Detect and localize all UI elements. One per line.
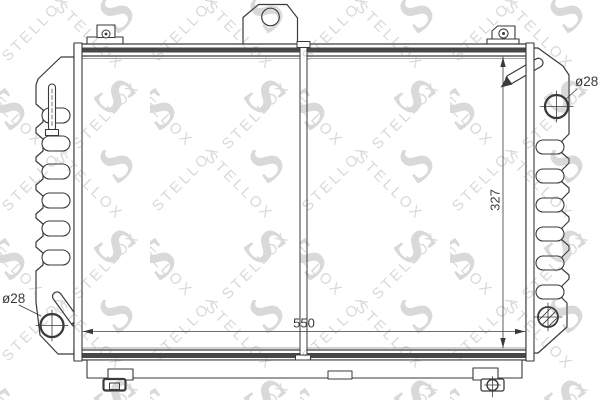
drawing-canvas: STELLOX STELLOX STELLOX STELLOX S S S	[0, 0, 600, 400]
radiator-technical-drawing: STELLOX STELLOX STELLOX STELLOX S S S	[0, 0, 600, 400]
stellox-watermark-overlay	[0, 0, 600, 400]
